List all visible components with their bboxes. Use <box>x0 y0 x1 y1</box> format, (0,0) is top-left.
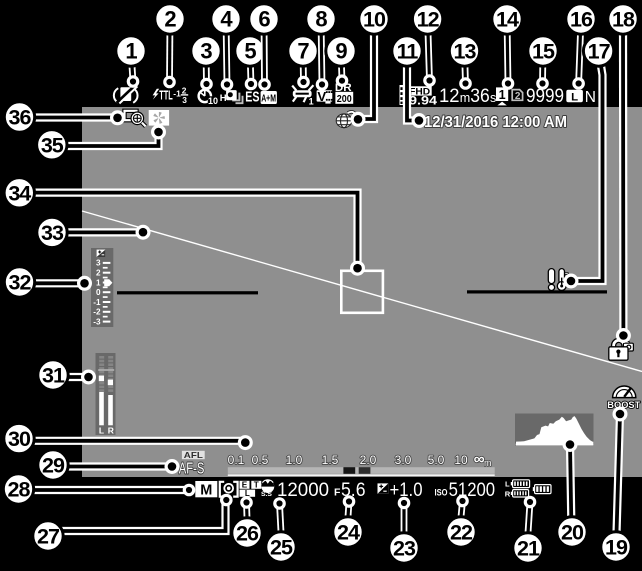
svg-text:14: 14 <box>496 8 519 32</box>
svg-text:10: 10 <box>363 8 386 32</box>
svg-text:32: 32 <box>9 271 32 295</box>
svg-text:10: 10 <box>208 96 218 106</box>
svg-text:33: 33 <box>41 221 64 245</box>
svg-text:1: 1 <box>125 39 137 64</box>
svg-text:5: 5 <box>244 39 256 64</box>
svg-text:28: 28 <box>8 478 31 502</box>
svg-text:26: 26 <box>236 522 259 546</box>
svg-text:200: 200 <box>337 94 352 105</box>
svg-text:7: 7 <box>297 39 309 64</box>
svg-text:A+M: A+M <box>261 94 276 105</box>
svg-text:TTL: TTL <box>159 89 173 103</box>
svg-text:L: L <box>571 91 578 103</box>
svg-text:-3: -3 <box>93 317 101 326</box>
svg-text:30: 30 <box>8 427 31 451</box>
svg-text:0.1: 0.1 <box>228 453 245 467</box>
svg-text:36: 36 <box>9 106 32 130</box>
svg-text:AFL: AFL <box>184 450 203 460</box>
svg-text:1.5: 1.5 <box>322 453 339 467</box>
svg-text:20: 20 <box>561 521 584 545</box>
svg-text:18: 18 <box>612 8 635 32</box>
svg-text:L: L <box>99 426 104 436</box>
svg-text:-2: -2 <box>93 308 101 317</box>
svg-text:R: R <box>505 490 511 499</box>
svg-text:24: 24 <box>337 521 360 545</box>
svg-text:M: M <box>200 483 212 499</box>
svg-text:2: 2 <box>96 269 101 278</box>
svg-text:1: 1 <box>499 88 506 102</box>
svg-text:6: 6 <box>258 7 270 32</box>
svg-text:23: 23 <box>393 537 416 561</box>
svg-text:17: 17 <box>588 40 611 64</box>
svg-text:N: N <box>585 89 596 106</box>
svg-text:3: 3 <box>96 259 101 268</box>
svg-text:22: 22 <box>450 521 473 545</box>
svg-text:R: R <box>108 426 114 436</box>
svg-text:T: T <box>254 481 259 490</box>
svg-text:s: s <box>490 91 496 105</box>
svg-text:16: 16 <box>570 8 593 32</box>
svg-text:1.0: 1.0 <box>286 453 303 467</box>
svg-text:F: F <box>334 487 341 499</box>
svg-text:2: 2 <box>164 7 176 32</box>
svg-text:9: 9 <box>335 39 347 64</box>
svg-text:11: 11 <box>397 40 419 64</box>
svg-text:0: 0 <box>96 288 101 297</box>
svg-text:3: 3 <box>200 39 212 64</box>
svg-text:35: 35 <box>41 133 64 157</box>
svg-text:12: 12 <box>439 86 460 107</box>
svg-text:5.0: 5.0 <box>428 453 445 467</box>
svg-text:12: 12 <box>417 8 440 32</box>
svg-text:21: 21 <box>517 537 540 561</box>
svg-text:-1: -1 <box>173 89 181 99</box>
svg-text:2: 2 <box>182 86 187 96</box>
svg-text:H: H <box>220 93 227 104</box>
svg-text:m: m <box>484 458 492 468</box>
svg-text:29: 29 <box>42 454 65 478</box>
svg-text:m: m <box>460 91 471 105</box>
svg-text:0.5: 0.5 <box>252 453 269 467</box>
svg-text:27: 27 <box>37 525 60 549</box>
svg-text:10: 10 <box>454 453 468 467</box>
svg-text:9.94: 9.94 <box>409 94 438 108</box>
svg-text:3: 3 <box>182 95 187 105</box>
svg-text:19: 19 <box>605 536 628 560</box>
svg-text:51200: 51200 <box>449 480 496 501</box>
svg-text:3.0: 3.0 <box>395 453 412 467</box>
svg-text:2.0: 2.0 <box>360 453 377 467</box>
svg-text:15: 15 <box>532 40 555 64</box>
svg-text:1: 1 <box>309 97 314 107</box>
svg-text:4: 4 <box>220 7 233 32</box>
svg-text:25: 25 <box>270 536 293 560</box>
svg-text:8: 8 <box>315 7 327 32</box>
svg-text:36: 36 <box>470 86 490 107</box>
svg-text:L: L <box>505 480 510 489</box>
svg-text:S.S: S.S <box>261 491 272 498</box>
svg-text:-1: -1 <box>93 298 101 307</box>
svg-text:1: 1 <box>96 278 101 287</box>
svg-text:ISO: ISO <box>435 487 448 498</box>
svg-text:12000: 12000 <box>277 480 329 501</box>
svg-text:31: 31 <box>42 364 65 388</box>
svg-text:2: 2 <box>515 91 521 102</box>
svg-text:13: 13 <box>454 40 477 64</box>
svg-text:12/31/2016 12:00 AM: 12/31/2016 12:00 AM <box>424 114 567 131</box>
svg-text:ES: ES <box>245 88 259 105</box>
svg-text:AF-S: AF-S <box>179 461 205 478</box>
svg-text:V: V <box>317 89 326 104</box>
svg-text:34: 34 <box>8 181 31 205</box>
